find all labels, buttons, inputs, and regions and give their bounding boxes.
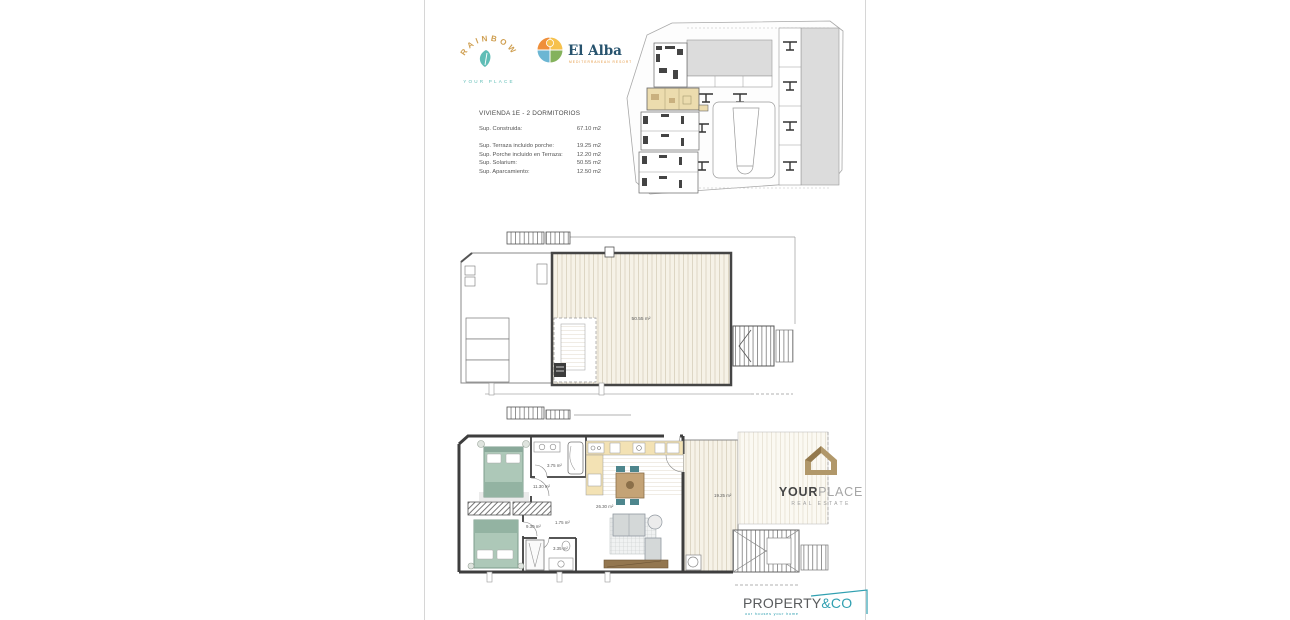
yourplace-word2: PLACE [818,485,863,499]
bathroom2-area-label: 3.35 m² [553,546,568,551]
spec-label: Sup. Construida: [479,126,522,132]
bathroom1-fixtures [534,442,583,474]
roof-element [546,232,570,244]
yourplace-logo: YOURPLACE REAL ESTATE [766,444,876,507]
propertyco-tagline: our houses your home [745,612,799,616]
yourplace-word1: YOUR [779,485,818,499]
courtyard-pool [713,102,775,178]
feather-icon [480,50,491,67]
chimney [605,247,614,257]
planters [466,318,509,382]
site-plan [621,10,859,208]
unit-specs: VIVIENDA 1E - 2 DORMITORIOS Sup. Constru… [479,110,601,177]
elalba-logo: El Alba MEDITERRANEAN RESORT [535,30,631,70]
bedroom2-bed [468,520,524,569]
roof-element [507,232,544,244]
side-deck [801,545,828,570]
spec-row: Sup. Terraza incluido porche: 19.25 m2 [479,143,601,149]
building-block-top [687,40,772,76]
bathroom2-fixtures [526,540,573,570]
spec-label: Sup. Porche incluido en Terraza: [479,152,563,158]
stairs [733,530,799,572]
wardrobe [468,502,510,515]
solarium-area-label: 50.55 m² [632,316,651,322]
elalba-name: El Alba [568,43,622,59]
stairs [733,326,774,366]
elalba-emblem-icon [537,37,563,63]
spec-value: 19.25 m2 [577,143,601,149]
spec-label: Sup. Terraza incluido porche: [479,143,554,149]
hall-area-label: 1.75 m² [555,520,570,525]
roof-element [546,410,570,419]
spec-value: 12.20 m2 [577,152,601,158]
rainbow-logo: RAINBOW YOUR PLACE [449,24,529,90]
building-block-right [801,28,839,185]
bedroom2-area-label: 9.30 m² [526,524,541,529]
wardrobe [513,502,551,515]
unit-block-topleft [654,43,687,87]
propertyco-logo: PROPERTY&CO our houses your home [741,588,871,618]
bedroom1-area-label: 11.30 m² [533,484,551,489]
highlighted-unit-1e [647,88,708,111]
spec-row: Sup. Aparcamiento: 12.50 m2 [479,169,601,175]
roof-element [507,407,544,419]
unit-block-left-2 [639,152,698,193]
spec-label: Sup. Aparcamiento: [479,169,530,175]
yourplace-house-icon [803,444,839,477]
side-deck [776,330,793,362]
solarium-floor-plan: 50.55 m² [449,226,803,432]
pergola-area [554,318,596,382]
bathroom1-area-label: 3.75 m² [547,463,562,468]
bedroom1-bed [478,441,530,502]
terrace-deck [683,440,738,572]
spec-value: 50.55 m2 [577,160,601,166]
unit-title: VIVIENDA 1E - 2 DORMITORIOS [479,110,601,117]
rainbow-subtitle: YOUR PLACE [463,79,515,84]
spec-row: Sup. Porche incluido en Terraza: 12.20 m… [479,152,601,158]
spec-value: 12.50 m2 [577,169,601,175]
spec-row: Sup. Construida: 67.10 m2 [479,126,601,132]
propertyco-name: PROPERTY&CO [743,595,852,611]
sofa-set [610,514,662,562]
terrace-table [686,555,701,570]
living-area-label: 26.30 m² [596,504,614,509]
spec-label: Sup. Solarium: [479,160,517,166]
spec-row: Sup. Solarium: 50.55 m2 [479,160,601,166]
brochure-sheet: RAINBOW YOUR PLACE El Alba MEDITERRANEAN… [424,0,866,620]
yourplace-subtitle: REAL ESTATE [766,501,876,507]
terrace-area-label: 19.25 m² [714,493,732,498]
unit-block-left-1 [641,112,699,150]
spec-value: 67.10 m2 [577,126,601,132]
yourplace-name: YOURPLACE [766,485,876,499]
